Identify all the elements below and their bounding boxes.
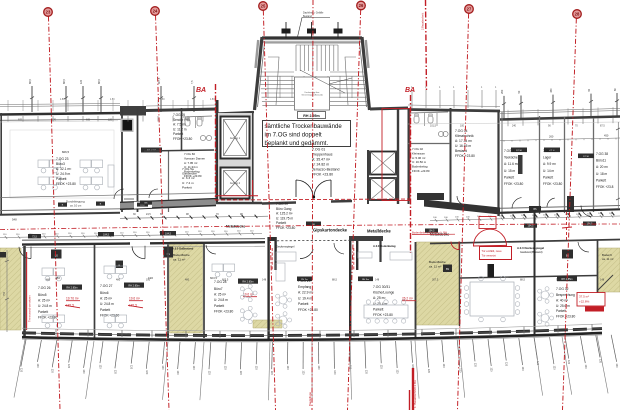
svg-text:A: 11.6 m²: A: 11.6 m²	[504, 162, 518, 166]
svg-text:120: 120	[317, 365, 320, 370]
svg-text:ca. 10 cm: ca. 10 cm	[70, 203, 81, 207]
svg-text:Büro Gang: Büro Gang	[276, 207, 292, 211]
svg-text:28: 28	[575, 12, 580, 17]
svg-text:ST 50: ST 50	[516, 150, 523, 152]
svg-text:ca. 11 m²: ca. 11 m²	[173, 258, 185, 262]
svg-text:120: 120	[474, 363, 477, 368]
svg-text:88,5: 88,5	[520, 279, 525, 282]
svg-text:120: 120	[208, 371, 211, 376]
svg-text:7.OG 01: 7.OG 01	[312, 148, 325, 152]
svg-text:A: 9.9 m²: A: 9.9 m²	[543, 162, 556, 166]
svg-text:1.50: 1.50	[160, 99, 165, 101]
svg-text:Parkett: Parkett	[298, 302, 309, 306]
svg-text:Parkett: Parkett	[543, 175, 553, 179]
svg-text:101,5: 101,5	[430, 125, 437, 128]
svg-text:148: 148	[375, 279, 380, 282]
svg-text:88,5: 88,5	[29, 79, 32, 84]
svg-text:120: 120	[270, 371, 273, 376]
svg-text:Bodenfarbe angleichen lt. BH: Bodenfarbe angleichen lt. BH	[412, 231, 447, 235]
svg-text:120: 120	[255, 366, 258, 371]
svg-text:RH 2.85m: RH 2.85m	[242, 280, 253, 283]
svg-text:FFOK +23.80: FFOK +23.80	[412, 169, 430, 173]
svg-text:120: 120	[380, 365, 383, 370]
svg-text:Besprechung: Besprechung	[556, 293, 575, 297]
svg-text:Parkett: Parkett	[556, 309, 566, 313]
svg-text:260: 260	[549, 135, 554, 139]
svg-text:U: 24.8 m: U: 24.8 m	[100, 302, 114, 306]
svg-text:FFOK +23.80: FFOK +23.80	[100, 313, 119, 317]
svg-text:Parkett: Parkett	[100, 308, 110, 312]
svg-text:120: 120	[224, 366, 227, 371]
svg-text:A: 22.9 m²: A: 22.9 m²	[298, 291, 314, 295]
svg-text:ca. 11 m²: ca. 11 m²	[602, 257, 614, 261]
svg-text:A: 7.5 m²: A: 7.5 m²	[173, 123, 186, 127]
svg-text:A: 20 m²: A: 20 m²	[596, 165, 608, 169]
svg-text:7.OG 66: 7.OG 66	[184, 152, 195, 156]
svg-text:7.OG 05: 7.OG 05	[173, 113, 185, 117]
svg-text:Parkett: Parkett	[504, 175, 514, 179]
svg-text:Küche/Lounge: Küche/Lounge	[373, 291, 394, 295]
svg-text:548: 548	[12, 218, 17, 222]
svg-text:480: 480	[185, 279, 190, 282]
svg-text:260: 260	[501, 89, 504, 94]
svg-text:ca. 11 m²: ca. 11 m²	[429, 265, 441, 269]
svg-text:120: 120	[145, 370, 148, 375]
svg-text:im 7.OG sind doppelt: im 7.OG sind doppelt	[265, 132, 323, 139]
svg-text:A: 17.34 m²: A: 17.34 m²	[455, 139, 473, 143]
svg-text:7.OG 41: 7.OG 41	[504, 149, 516, 153]
svg-text:Trennwand versetzen: Trennwand versetzen	[28, 295, 32, 322]
svg-text:Aufzug 2: Aufzug 2	[230, 181, 241, 185]
svg-text:Durchbiegung: Durchbiegung	[66, 200, 85, 204]
svg-text:Büro3: Büro3	[56, 162, 65, 166]
svg-text:BS-K: BS-K	[140, 205, 145, 207]
svg-text:U: 18 m: U: 18 m	[596, 172, 608, 176]
svg-text:104,5: 104,5	[165, 232, 172, 235]
svg-text:RH 3m: RH 3m	[362, 279, 369, 281]
svg-text:Dachaustieg über: Dachaustieg über	[305, 91, 320, 94]
svg-text:87,5: 87,5	[600, 125, 605, 128]
svg-text:120: 120	[615, 363, 618, 368]
svg-text:U: 24.8 m: U: 24.8 m	[38, 304, 52, 308]
svg-text:7.OG 02: 7.OG 02	[412, 147, 423, 151]
svg-text:U: 7.4 m: U: 7.4 m	[182, 181, 194, 185]
svg-text:120: 120	[286, 366, 289, 371]
svg-text:A: 32.1 m²: A: 32.1 m²	[56, 167, 72, 171]
svg-text:120: 120	[505, 362, 508, 367]
svg-text:603,5: 603,5	[210, 276, 217, 280]
svg-text:Büro5: Büro5	[38, 293, 47, 297]
svg-text:ST 50: ST 50	[583, 156, 590, 158]
svg-text:Büro11: Büro11	[596, 159, 606, 163]
svg-text:120: 120	[80, 79, 83, 84]
svg-text:120: 120	[584, 365, 587, 370]
svg-text:Metalldecke: Metalldecke	[367, 229, 391, 234]
svg-text:120: 120	[99, 365, 102, 370]
svg-text:1.50: 1.50	[210, 99, 215, 101]
svg-text:88,5: 88,5	[63, 79, 66, 84]
svg-text:120: 120	[239, 371, 242, 376]
svg-text:120: 120	[130, 365, 133, 370]
svg-text:U: 14 m: U: 14 m	[543, 169, 555, 173]
svg-text:A: 25 m²: A: 25 m²	[373, 296, 386, 300]
svg-text:7.OG 23: 7.OG 23	[56, 157, 69, 161]
svg-text:RH 2.85m: RH 2.85m	[128, 284, 139, 287]
svg-text:307,5: 307,5	[432, 279, 439, 282]
svg-text:Parkett: Parkett	[276, 221, 286, 225]
svg-text:Vorraum Damen: Vorraum Damen	[184, 156, 205, 160]
svg-text:120: 120	[82, 369, 85, 374]
svg-text:RH 2.85m: RH 2.85m	[66, 286, 77, 289]
svg-text:U: 24.9 m: U: 24.9 m	[56, 172, 71, 176]
svg-text:120: 120	[114, 370, 117, 375]
svg-text:U: 19.4 m: U: 19.4 m	[298, 296, 313, 300]
svg-text:A: 5.06 m²: A: 5.06 m²	[412, 156, 425, 160]
svg-text:Terrazzo-Bestand: Terrazzo-Bestand	[312, 168, 339, 172]
svg-text:BS: BS	[446, 269, 450, 271]
svg-text:Parkett: Parkett	[373, 307, 384, 311]
svg-text:Bodenfläche: Bodenfläche	[429, 260, 446, 264]
svg-text:Bodenbelag: Bodenbelag	[184, 170, 200, 174]
svg-text:FFOK +23.80: FFOK +23.80	[173, 137, 192, 141]
svg-text:A: 25 m²: A: 25 m²	[214, 293, 226, 297]
svg-text:7.OG 29: 7.OG 29	[298, 279, 311, 283]
svg-text:Tür versetzt: Tür versetzt	[482, 254, 496, 258]
svg-text:A.0.0 Bodenbelag: A.0.0 Bodenbelag	[373, 244, 396, 248]
svg-text:FFOK +23.80: FFOK +23.80	[56, 182, 76, 186]
svg-text:A.0.0 DaBestand: A.0.0 DaBestand	[172, 247, 194, 251]
svg-text:19.6 m²: 19.6 m²	[129, 297, 140, 301]
svg-text:120: 120	[19, 368, 22, 373]
svg-text:U: 15 m: U: 15 m	[504, 169, 516, 173]
svg-text:U: 16.50 m: U: 16.50 m	[412, 160, 427, 164]
svg-text:U: 16.65 m: U: 16.65 m	[455, 144, 471, 148]
svg-text:826,5: 826,5	[62, 150, 69, 154]
svg-text:RH 2.95m: RH 2.95m	[303, 114, 319, 118]
svg-text:FFOK +23.80: FFOK +23.80	[298, 308, 318, 312]
svg-text:A: 25 m²: A: 25 m²	[38, 299, 50, 303]
svg-text:7.OG 38: 7.OG 38	[596, 152, 608, 156]
svg-text:88,5: 88,5	[98, 79, 101, 84]
svg-text:480: 480	[116, 279, 121, 282]
svg-text:Aufzug 1: Aufzug 1	[230, 136, 241, 140]
svg-text:7.OG 26: 7.OG 26	[38, 286, 51, 290]
svg-text:BA: BA	[405, 87, 415, 94]
svg-text:FFOK +23.80: FFOK +23.80	[373, 313, 393, 317]
svg-text:U: 11.34 m: U: 11.34 m	[184, 165, 199, 169]
svg-text:98,5: 98,5	[556, 279, 561, 282]
svg-text:120: 120	[67, 364, 70, 369]
svg-text:148: 148	[600, 279, 605, 282]
svg-text:FFOK +23.80: FFOK +23.80	[184, 174, 202, 178]
svg-text:Parkett: Parkett	[596, 178, 606, 182]
svg-text:450: 450	[604, 134, 609, 138]
svg-text:Parkett: Parkett	[182, 185, 192, 189]
svg-text:120: 120	[51, 369, 54, 374]
svg-text:120: 120	[567, 360, 570, 365]
svg-text:120: 120	[427, 369, 430, 374]
svg-text:88,5: 88,5	[332, 279, 337, 282]
svg-text:Bodenbelag: Bodenbelag	[412, 165, 428, 169]
svg-text:120: 120	[490, 368, 493, 373]
svg-text:120: 120	[36, 364, 39, 369]
svg-text:7.OG 27: 7.OG 27	[100, 284, 113, 288]
svg-text:7.OG 20: 7.OG 20	[276, 202, 288, 206]
svg-text:Empfang: Empfang	[298, 285, 311, 289]
svg-text:U: 24.8 m: U: 24.8 m	[214, 298, 228, 302]
svg-text:+22.8%: +22.8%	[579, 300, 590, 304]
svg-text:120: 120	[396, 370, 399, 375]
svg-text:U: 24.82 m: U: 24.82 m	[312, 163, 329, 167]
svg-text:120: 120	[176, 371, 179, 376]
svg-text:U: 119.75 m: U: 119.75 m	[276, 216, 293, 220]
svg-text:U: 25.6 m: U: 25.6 m	[556, 304, 570, 308]
svg-text:120: 120	[302, 371, 305, 376]
svg-text:Klimatechnik: Klimatechnik	[455, 134, 474, 138]
svg-text:104,5: 104,5	[103, 233, 110, 236]
svg-text:Scherentreppe (Bestand): Scherentreppe (Bestand)	[301, 94, 322, 97]
svg-text:FFOK +23.80: FFOK +23.80	[276, 226, 295, 230]
svg-text:7.OG 30/31: 7.OG 30/31	[373, 285, 390, 289]
svg-text:Lager: Lager	[543, 156, 552, 160]
svg-text:FFOK +23.8: FFOK +23.8	[596, 185, 614, 189]
svg-text:120: 120	[333, 370, 336, 375]
svg-text:A: 25 m²: A: 25 m²	[100, 297, 112, 301]
svg-text:BA: BA	[196, 87, 206, 94]
svg-text:120: 120	[442, 364, 445, 369]
svg-text:450: 450	[550, 88, 553, 93]
svg-text:104,5: 104,5	[528, 226, 534, 228]
svg-text:Gasbeton(Bestand): Gasbeton(Bestand)	[520, 250, 543, 254]
svg-text:170: 170	[52, 119, 57, 122]
svg-text:Bodenfläche: Bodenfläche	[173, 253, 190, 257]
svg-text:120: 120	[521, 367, 524, 372]
svg-text:BS: BS	[533, 209, 537, 211]
svg-text:27: 27	[467, 7, 472, 12]
svg-text:1.50: 1.50	[60, 99, 65, 101]
svg-text:190: 190	[146, 279, 151, 282]
svg-text:240: 240	[512, 125, 517, 128]
svg-text:A: 7.95 m²: A: 7.95 m²	[184, 161, 197, 165]
svg-text:FFOK +23.80: FFOK +23.80	[504, 182, 523, 186]
svg-text:480: 480	[46, 279, 51, 282]
svg-text:24,5: 24,5	[146, 213, 151, 216]
svg-text:120: 120	[161, 365, 164, 370]
svg-text:120: 120	[192, 366, 195, 371]
svg-text:26: 26	[359, 3, 364, 8]
svg-text:Teeküche: Teeküche	[504, 156, 518, 160]
svg-text:23: 23	[46, 10, 51, 15]
svg-text:Bauteilfuge: Bauteilfuge	[308, 392, 312, 406]
svg-text:605: 605	[18, 119, 23, 122]
svg-text:Parkett: Parkett	[38, 310, 48, 314]
svg-text:25: 25	[261, 4, 266, 9]
svg-text:72,5: 72,5	[32, 235, 37, 238]
svg-text:148: 148	[262, 279, 267, 282]
svg-text:120: 120	[552, 366, 555, 371]
svg-text:A.0.0 Deckenspiegel: A.0.0 Deckenspiegel	[517, 246, 544, 250]
svg-text:19.76 m²: 19.76 m²	[66, 297, 79, 301]
svg-text:Deckenspiegel: Deckenspiegel	[276, 245, 295, 249]
svg-text:Gipskartondecke: Gipskartondecke	[313, 228, 348, 233]
svg-text:U: 11.2 m: U: 11.2 m	[173, 127, 187, 131]
svg-text:Bestand: Bestand	[303, 15, 312, 18]
svg-text:FFOK +23.80: FFOK +23.80	[214, 309, 233, 313]
svg-text:7,5: 7,5	[191, 80, 194, 84]
svg-text:Parkett: Parkett	[56, 177, 67, 181]
svg-text:24: 24	[153, 9, 158, 14]
svg-text:sämtliche Trockenbauwände: sämtliche Trockenbauwände	[265, 123, 343, 130]
svg-text:Büro7: Büro7	[214, 287, 223, 291]
svg-text:Bestand: Bestand	[455, 149, 467, 153]
svg-text:120: 120	[364, 370, 367, 375]
svg-text:beplankt und gedämmt.: beplankt und gedämmt.	[265, 140, 329, 147]
svg-text:7.OG 40: 7.OG 40	[543, 149, 555, 153]
svg-text:407,5: 407,5	[158, 77, 161, 84]
svg-text:120: 120	[599, 359, 602, 364]
svg-text:Parkett: Parkett	[214, 304, 224, 308]
svg-text:FFOK +23.80: FFOK +23.80	[312, 173, 333, 177]
svg-text:750: 750	[3, 291, 6, 296]
svg-text:2.Bauabschnitt: 2.Bauabschnitt	[421, 13, 425, 30]
svg-text:1.50: 1.50	[110, 99, 115, 101]
svg-text:Tür entfällt, neue: Tür entfällt, neue	[482, 249, 503, 253]
svg-text:Treppenhaus: Treppenhaus	[312, 153, 333, 157]
svg-text:FFOK +23.80: FFOK +23.80	[38, 315, 57, 319]
svg-text:37.5 m²: 37.5 m²	[579, 295, 589, 299]
svg-text:A: 125.2 m²: A: 125.2 m²	[276, 212, 292, 216]
svg-text:603,5: 603,5	[222, 279, 229, 282]
svg-text:Kleinraum: Kleinraum	[412, 151, 426, 155]
svg-text:Büro6: Büro6	[100, 291, 109, 295]
svg-text:A: 35.47 m²: A: 35.47 m²	[312, 158, 331, 162]
svg-text:FFOK +23.80: FFOK +23.80	[543, 182, 562, 186]
svg-text:100: 100	[460, 125, 465, 128]
